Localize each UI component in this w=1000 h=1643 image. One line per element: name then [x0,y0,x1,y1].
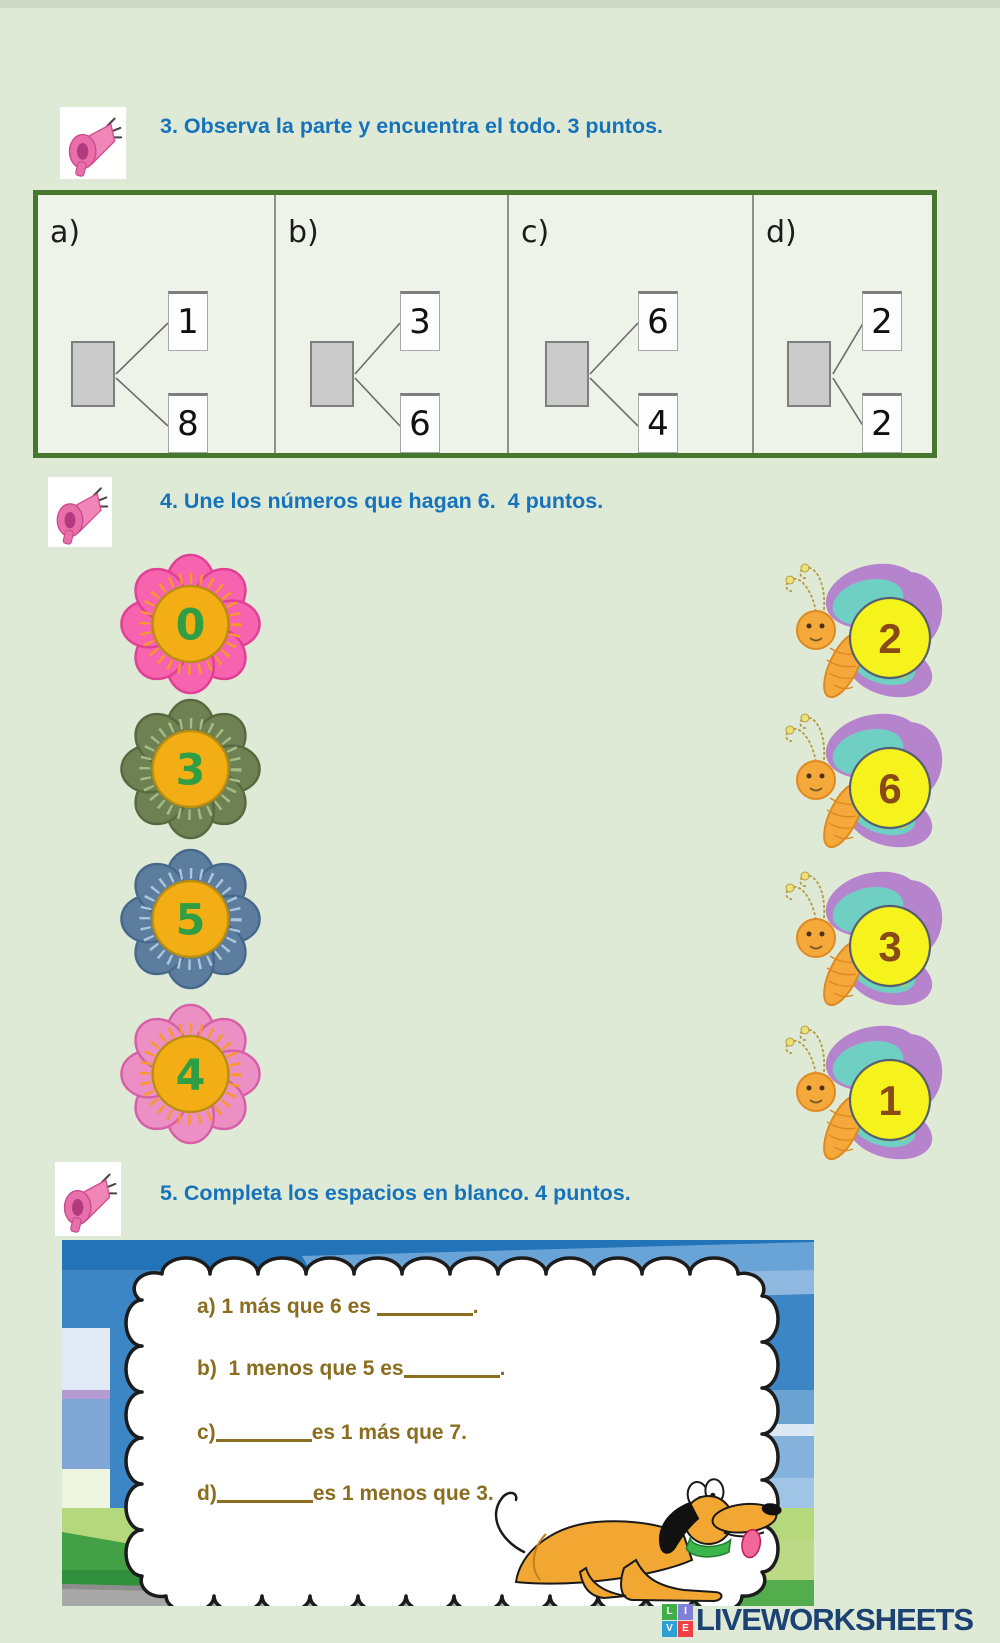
bond-a: a) 1 8 [38,195,276,453]
fill-b-text: b) 1 menos que 5 es [197,1357,404,1380]
butterfly-number: 2 [878,615,901,662]
bond-b-part-top: 3 [400,291,440,351]
bond-c: c) 6 4 [509,195,754,453]
section5-title: 5. Completa los espacios en blanco. 4 pu… [160,1181,631,1206]
butterfly-number: 3 [878,923,901,970]
fill-item-c: c)es 1 más que 7. [197,1421,467,1445]
bond-b-part-bottom: 6 [400,393,440,453]
flower-item-0[interactable]: 0 [118,553,263,695]
fill-d-text: d) [197,1482,217,1505]
butterfly-item-1[interactable]: 6 [770,700,945,862]
bond-c-part-top: 6 [638,291,678,351]
fill-a-text: a) 1 más que 6 es [197,1295,377,1318]
fill-c-text: c) [197,1421,216,1444]
fill-item-a: a) 1 más que 6 es . [197,1295,479,1319]
fill-item-d: d)es 1 menos que 3. [197,1482,494,1506]
fill-c-after: es 1 más que 7. [312,1421,467,1444]
bond-b-label: b) [288,215,319,250]
fill-b-after: . [500,1357,506,1380]
flower-item-1[interactable]: 3 [118,698,263,840]
megaphone-glyph [57,1164,119,1234]
flower-number: 3 [176,746,206,796]
bond-a-label: a) [50,215,80,250]
fill-a-after: . [473,1295,479,1318]
bond-b-whole-box[interactable] [310,341,354,407]
flower-graphic: 0 [118,553,263,695]
flower-graphic: 4 [118,1003,263,1145]
flower-item-2[interactable]: 5 [118,848,263,990]
megaphone-glyph [62,109,124,177]
liveworksheets-logo-icon: L I V E [662,1604,693,1637]
bond-d-part-top: 2 [862,291,902,351]
flower-graphic: 5 [118,848,263,990]
butterfly-graphic: 3 [770,858,945,1018]
butterfly-number: 6 [878,765,901,812]
number-bonds-box: a) 1 8 b) 3 6 c) 6 4 [33,190,937,458]
megaphone-icon[interactable] [55,1162,121,1236]
answer-blank-a[interactable] [377,1295,473,1316]
flower-item-3[interactable]: 4 [118,1003,263,1145]
megaphone-icon[interactable] [60,107,126,179]
flower-number: 4 [176,1051,206,1101]
bond-c-whole-box[interactable] [545,341,589,407]
answer-blank-b[interactable] [404,1357,500,1378]
logo-square-l: L [662,1604,677,1620]
logo-square-v: V [662,1621,677,1637]
fill-d-after: es 1 menos que 3. [313,1482,494,1505]
megaphone-icon[interactable] [48,477,112,547]
megaphone-glyph [50,479,110,545]
bond-c-part-bottom: 4 [638,393,678,453]
liveworksheets-logo[interactable]: L I V E LIVEWORKSHEETS [662,1602,973,1638]
flower-number: 5 [176,896,206,946]
butterfly-item-0[interactable]: 2 [770,550,945,712]
bond-a-part-bottom: 8 [168,393,208,453]
butterfly-graphic: 1 [770,1012,945,1172]
answer-blank-d[interactable] [217,1482,313,1503]
section3-title: 3. Observa la parte y encuentra el todo.… [160,114,663,139]
flower-graphic: 3 [118,698,263,840]
fill-blanks-scene: a) 1 más que 6 es . b) 1 menos que 5 es.… [62,1240,814,1606]
bond-a-part-top: 1 [168,291,208,351]
logo-square-e: E [678,1621,693,1637]
bond-d-label: d) [766,215,797,250]
bond-b: b) 3 6 [276,195,509,453]
bond-d-part-bottom: 2 [862,393,902,453]
bond-d-whole-box[interactable] [787,341,831,407]
page-top-edge [0,0,1000,8]
flower-number: 0 [176,601,206,651]
butterfly-graphic: 2 [770,550,945,710]
butterfly-item-3[interactable]: 1 [770,1012,945,1174]
logo-square-i: I [678,1604,693,1620]
worksheet-page: 3. Observa la parte y encuentra el todo.… [0,0,1000,1643]
bond-a-whole-box[interactable] [71,341,115,407]
bond-d: d) 2 2 [754,195,932,453]
butterfly-number: 1 [878,1077,901,1124]
fill-item-b: b) 1 menos que 5 es. [197,1357,505,1381]
liveworksheets-logo-text: LIVEWORKSHEETS [696,1602,973,1638]
answer-blank-c[interactable] [216,1421,312,1442]
butterfly-graphic: 6 [770,700,945,860]
butterfly-item-2[interactable]: 3 [770,858,945,1020]
section4-title: 4. Une los números que hagan 6. 4 puntos… [160,489,603,514]
bond-c-label: c) [521,215,549,250]
